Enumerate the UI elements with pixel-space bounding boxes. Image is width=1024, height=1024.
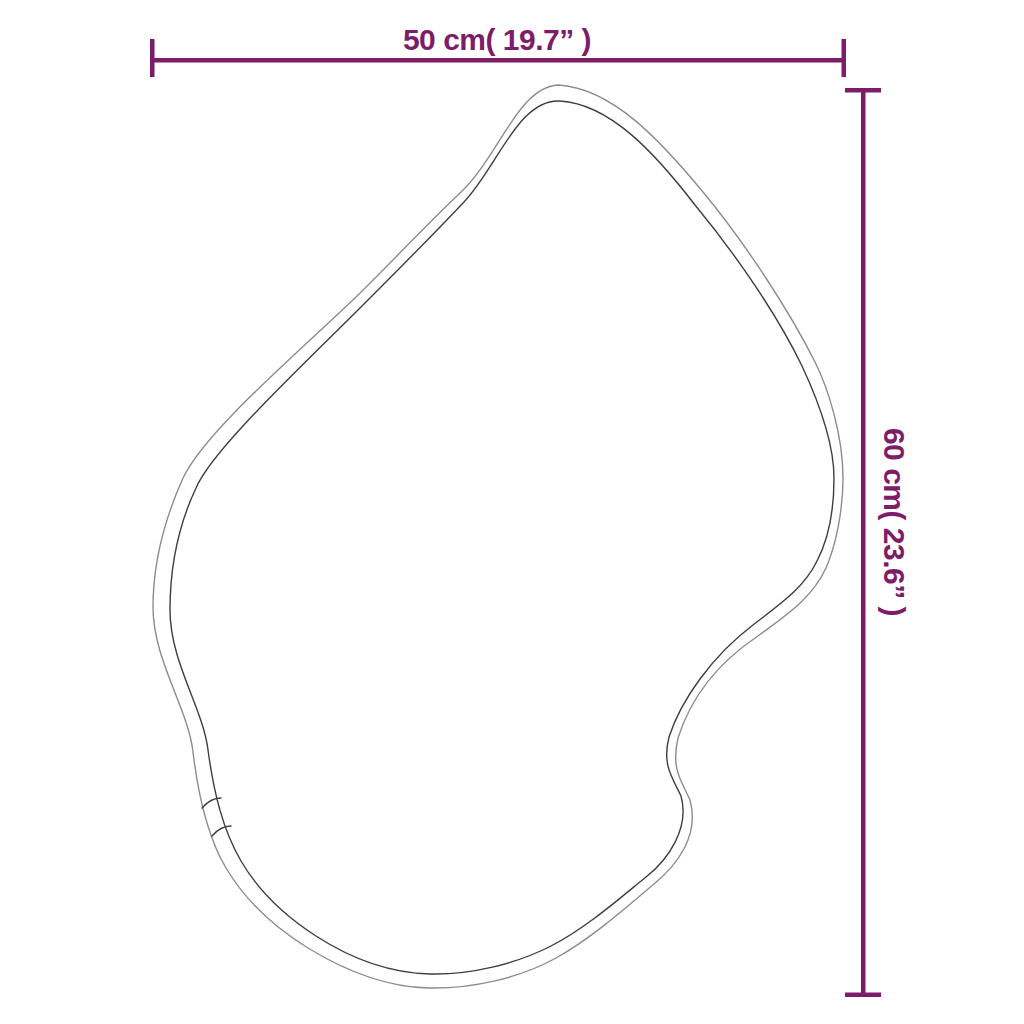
width-dimension: 50 cm( 19.7” ) — [150, 23, 846, 77]
width-dimension-line — [152, 58, 844, 63]
height-dimension: 60 cm( 23.6” ) — [845, 88, 911, 997]
width-dimension-label: 50 cm( 19.7” ) — [403, 23, 591, 56]
mirror-outline-outer — [153, 85, 843, 988]
mirror-dimension-diagram: 50 cm( 19.7” ) 60 cm( 23.6” ) — [0, 0, 1024, 1024]
diagram-canvas: 50 cm( 19.7” ) 60 cm( 23.6” ) — [0, 0, 1024, 1024]
height-dimension-label: 60 cm( 23.6” ) — [878, 428, 911, 616]
height-dimension-line — [861, 90, 866, 995]
mirror-shape — [153, 85, 843, 988]
